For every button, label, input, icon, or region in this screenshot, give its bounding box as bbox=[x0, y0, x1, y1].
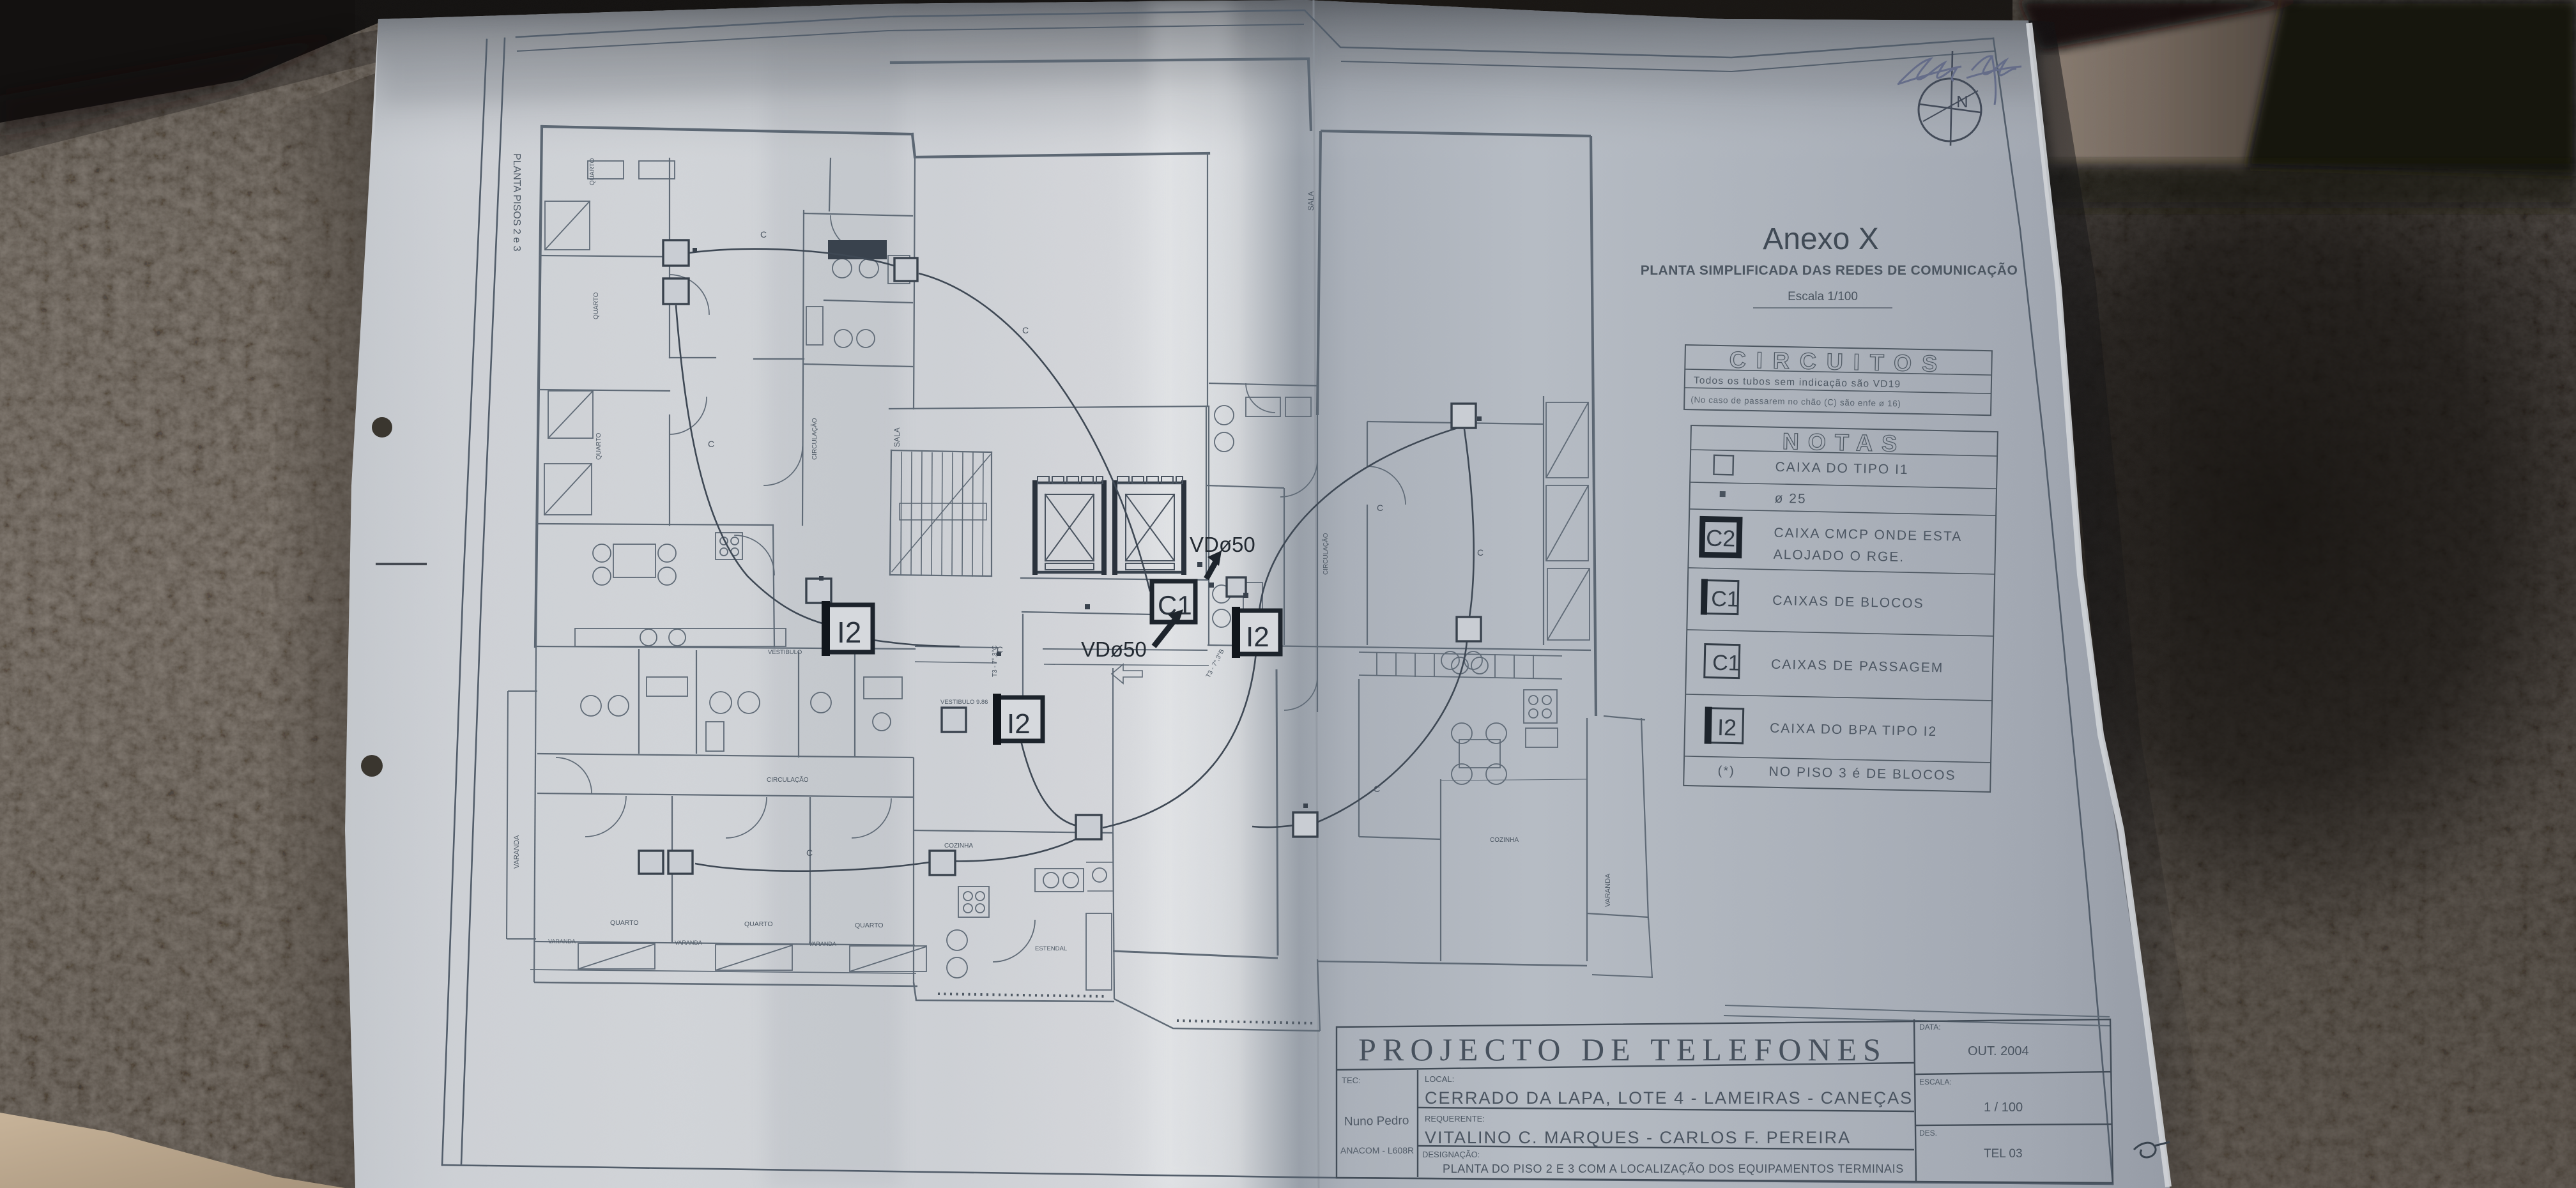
svg-text:ESTENDAL: ESTENDAL bbox=[1035, 945, 1067, 952]
svg-text:DESIGNAÇÃO:: DESIGNAÇÃO: bbox=[1422, 1150, 1480, 1159]
svg-text:N: N bbox=[1956, 92, 1968, 111]
svg-text:PLANTA DO PISO 2 E 3 COM A LOC: PLANTA DO PISO 2 E 3 COM A LOCALIZAÇÃO D… bbox=[1443, 1162, 1904, 1175]
svg-text:C: C bbox=[806, 848, 813, 858]
svg-text:C: C bbox=[760, 229, 767, 240]
svg-text:PLANTA PISOS 2 e 3: PLANTA PISOS 2 e 3 bbox=[511, 153, 522, 252]
svg-text:I2: I2 bbox=[1007, 708, 1031, 740]
svg-text:CIRCULAÇÃO: CIRCULAÇÃO bbox=[1321, 533, 1330, 575]
svg-text:SALA: SALA bbox=[893, 427, 901, 447]
svg-text:TEL 03: TEL 03 bbox=[1984, 1147, 2023, 1161]
svg-text:VARANDA: VARANDA bbox=[548, 938, 576, 945]
svg-text:QUARTO: QUARTO bbox=[593, 292, 600, 319]
svg-text:CERRADO DA LAPA, LOTE 4 - LAME: CERRADO DA LAPA, LOTE 4 - LAMEIRAS - CAN… bbox=[1425, 1088, 1913, 1108]
svg-text:PLANTA SIMPLIFICADA DAS REDES: PLANTA SIMPLIFICADA DAS REDES DE COMUNIC… bbox=[1641, 263, 2018, 278]
svg-text:QUARTO: QUARTO bbox=[855, 922, 884, 929]
svg-text:SALA: SALA bbox=[1307, 191, 1315, 211]
svg-text:Nuno Pedro: Nuno Pedro bbox=[1344, 1114, 1409, 1129]
svg-text:CIRCULAÇÃO: CIRCULAÇÃO bbox=[810, 418, 818, 460]
svg-text:C: C bbox=[708, 439, 714, 449]
svg-text:DES.: DES. bbox=[1919, 1129, 1937, 1138]
svg-text:DATA:: DATA: bbox=[1919, 1023, 1941, 1032]
svg-text:ANACOM - L608R: ANACOM - L608R bbox=[1340, 1145, 1414, 1155]
svg-text:COZINHA: COZINHA bbox=[944, 842, 973, 849]
svg-text:PROJECTO DE TELEFONES: PROJECTO DE TELEFONES bbox=[1358, 1032, 1887, 1067]
svg-text:QUARTO: QUARTO bbox=[744, 920, 773, 928]
svg-text:VARANDA: VARANDA bbox=[809, 941, 836, 947]
svg-text:C: C bbox=[1022, 325, 1029, 335]
svg-text:QUARTO: QUARTO bbox=[595, 432, 602, 460]
svg-text:T3 - 7°,3°C: T3 - 7°,3°C bbox=[992, 645, 999, 677]
svg-text:C1: C1 bbox=[1712, 651, 1740, 676]
svg-text:Anexo X: Anexo X bbox=[1763, 222, 1878, 256]
svg-text:VDø50: VDø50 bbox=[1190, 533, 1255, 556]
svg-text:VARANDA: VARANDA bbox=[675, 940, 702, 946]
svg-text:VITALINO C. MARQUES - CARLOS F: VITALINO C. MARQUES - CARLOS F. PEREIRA bbox=[1425, 1128, 1851, 1147]
svg-text:OUT. 2004: OUT. 2004 bbox=[1968, 1044, 2029, 1058]
svg-text:C: C bbox=[1477, 547, 1483, 558]
svg-text:ESCALA:: ESCALA: bbox=[1919, 1078, 1952, 1086]
svg-text:I2: I2 bbox=[837, 616, 861, 649]
svg-text:COZINHA: COZINHA bbox=[1490, 837, 1519, 844]
svg-text:ALOJADO O RGE.: ALOJADO O RGE. bbox=[1774, 547, 1905, 565]
svg-text:LOCAL:: LOCAL: bbox=[1425, 1074, 1454, 1084]
svg-text:VARANDA: VARANDA bbox=[1604, 873, 1612, 907]
svg-text:CIRCUITOS: CIRCUITOS bbox=[1729, 346, 1948, 377]
svg-text:C: C bbox=[1374, 784, 1380, 794]
svg-text:VESTIBULO: VESTIBULO bbox=[768, 649, 802, 656]
svg-text:C1: C1 bbox=[1711, 587, 1739, 612]
svg-text:Escala 1/100: Escala 1/100 bbox=[1788, 290, 1858, 303]
svg-text:CAIXA DO TIPO I1: CAIXA DO TIPO I1 bbox=[1775, 460, 1908, 477]
svg-text:I2: I2 bbox=[1246, 621, 1269, 653]
svg-text:ø 25: ø 25 bbox=[1774, 491, 1807, 506]
svg-text:REQUERENTE:: REQUERENTE: bbox=[1425, 1114, 1485, 1123]
svg-text:QUARTO: QUARTO bbox=[589, 158, 596, 185]
svg-text:VARANDA: VARANDA bbox=[513, 835, 521, 869]
svg-text:(*): (*) bbox=[1717, 764, 1735, 779]
svg-text:NOTAS: NOTAS bbox=[1782, 428, 1906, 457]
svg-text:C2: C2 bbox=[1706, 525, 1736, 552]
svg-text:CIRCULAÇÃO: CIRCULAÇÃO bbox=[767, 775, 809, 784]
svg-text:C: C bbox=[1377, 503, 1383, 513]
svg-text:1 / 100: 1 / 100 bbox=[1984, 1100, 2023, 1115]
svg-text:VDø50: VDø50 bbox=[1081, 637, 1147, 661]
svg-text:TEC:: TEC: bbox=[1342, 1076, 1361, 1085]
svg-text:VESTIBULO 9.86: VESTIBULO 9.86 bbox=[940, 699, 988, 706]
svg-text:QUARTO: QUARTO bbox=[610, 919, 639, 927]
svg-text:I2: I2 bbox=[1717, 714, 1737, 741]
